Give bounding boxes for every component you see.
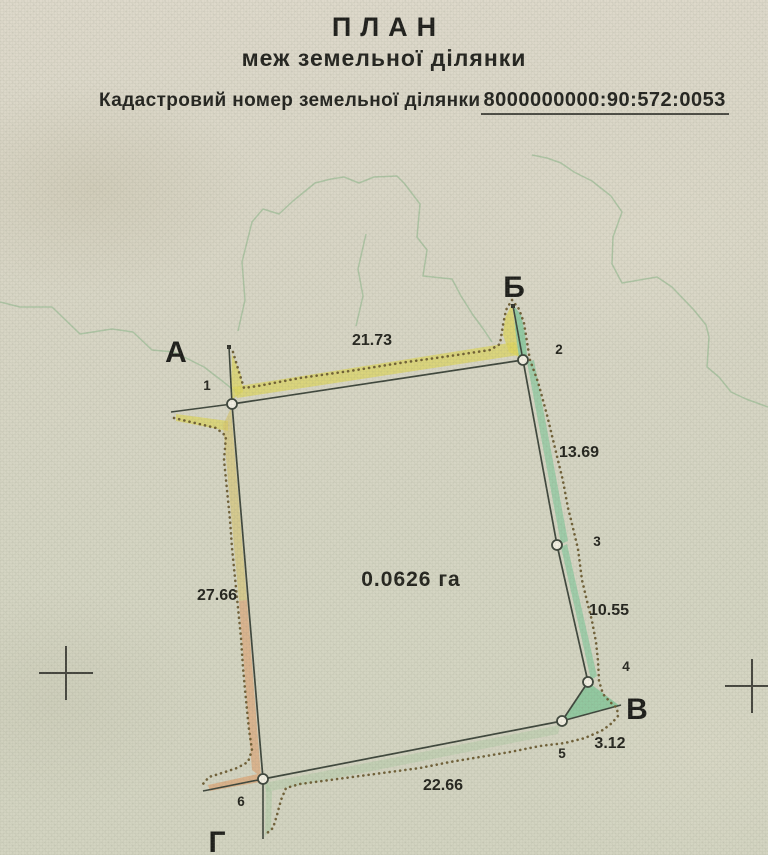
cadastral-number-row: Кадастровий номер земельної ділянки80000… [99, 89, 729, 115]
corner-letter-b: Б [503, 271, 525, 304]
corner-letter-g: Г [208, 826, 225, 855]
corner-letter-a: А [165, 336, 187, 369]
edge-length-label-5-6: 22.66 [423, 777, 463, 794]
survey-point-3 [552, 540, 562, 550]
adjacent-boundary-band [562, 682, 620, 721]
edge-length-label-2-3: 13.69 [559, 444, 599, 461]
edge-length-label-3-4: 10.55 [589, 602, 629, 619]
terrain-contour-line [238, 176, 492, 342]
adjacent-boundary-band [176, 414, 228, 431]
survey-tip-mark [511, 304, 515, 308]
survey-point-number-1: 1 [203, 378, 211, 393]
area-label: 0.0626 га [361, 568, 461, 591]
boundary-extension-line [171, 404, 232, 412]
survey-point-number-3: 3 [593, 534, 601, 549]
cadastral-number-label: Кадастровий номер земельної ділянки [99, 90, 481, 112]
survey-point-number-4: 4 [622, 659, 630, 674]
terrain-contour-line [0, 302, 236, 392]
corner-letter-v: В [626, 693, 648, 726]
cadastral-number-value: 8000000000:90:572:0053 [481, 89, 729, 115]
survey-point-number-6: 6 [237, 794, 245, 809]
survey-point-2 [518, 355, 528, 365]
land-plot-plan-drawing: 12345621.7313.6910.553.1222.6627.66АБВГ0… [0, 0, 768, 855]
survey-point-1 [227, 399, 237, 409]
adjacent-boundary-band [264, 725, 560, 792]
survey-point-5 [557, 716, 567, 726]
survey-point-6 [258, 774, 268, 784]
edge-length-label-4-5: 3.12 [594, 735, 625, 752]
scanned-plan-page: 12345621.7313.6910.553.1222.6627.66АБВГ0… [0, 0, 768, 855]
adjacent-boundary-band [233, 342, 519, 398]
edge-length-label-6-1: 27.66 [197, 587, 237, 604]
terrain-contour-line [356, 234, 366, 326]
survey-tip-mark [227, 345, 231, 349]
terrain-contour-line [532, 155, 768, 407]
survey-point-number-5: 5 [558, 746, 566, 761]
document-title: ПЛАН [0, 12, 768, 43]
edge-length-label-1-2: 21.73 [352, 332, 392, 349]
survey-point-number-2: 2 [555, 342, 563, 357]
document-subtitle: меж земельної ділянки [0, 45, 768, 72]
survey-point-4 [583, 677, 593, 687]
